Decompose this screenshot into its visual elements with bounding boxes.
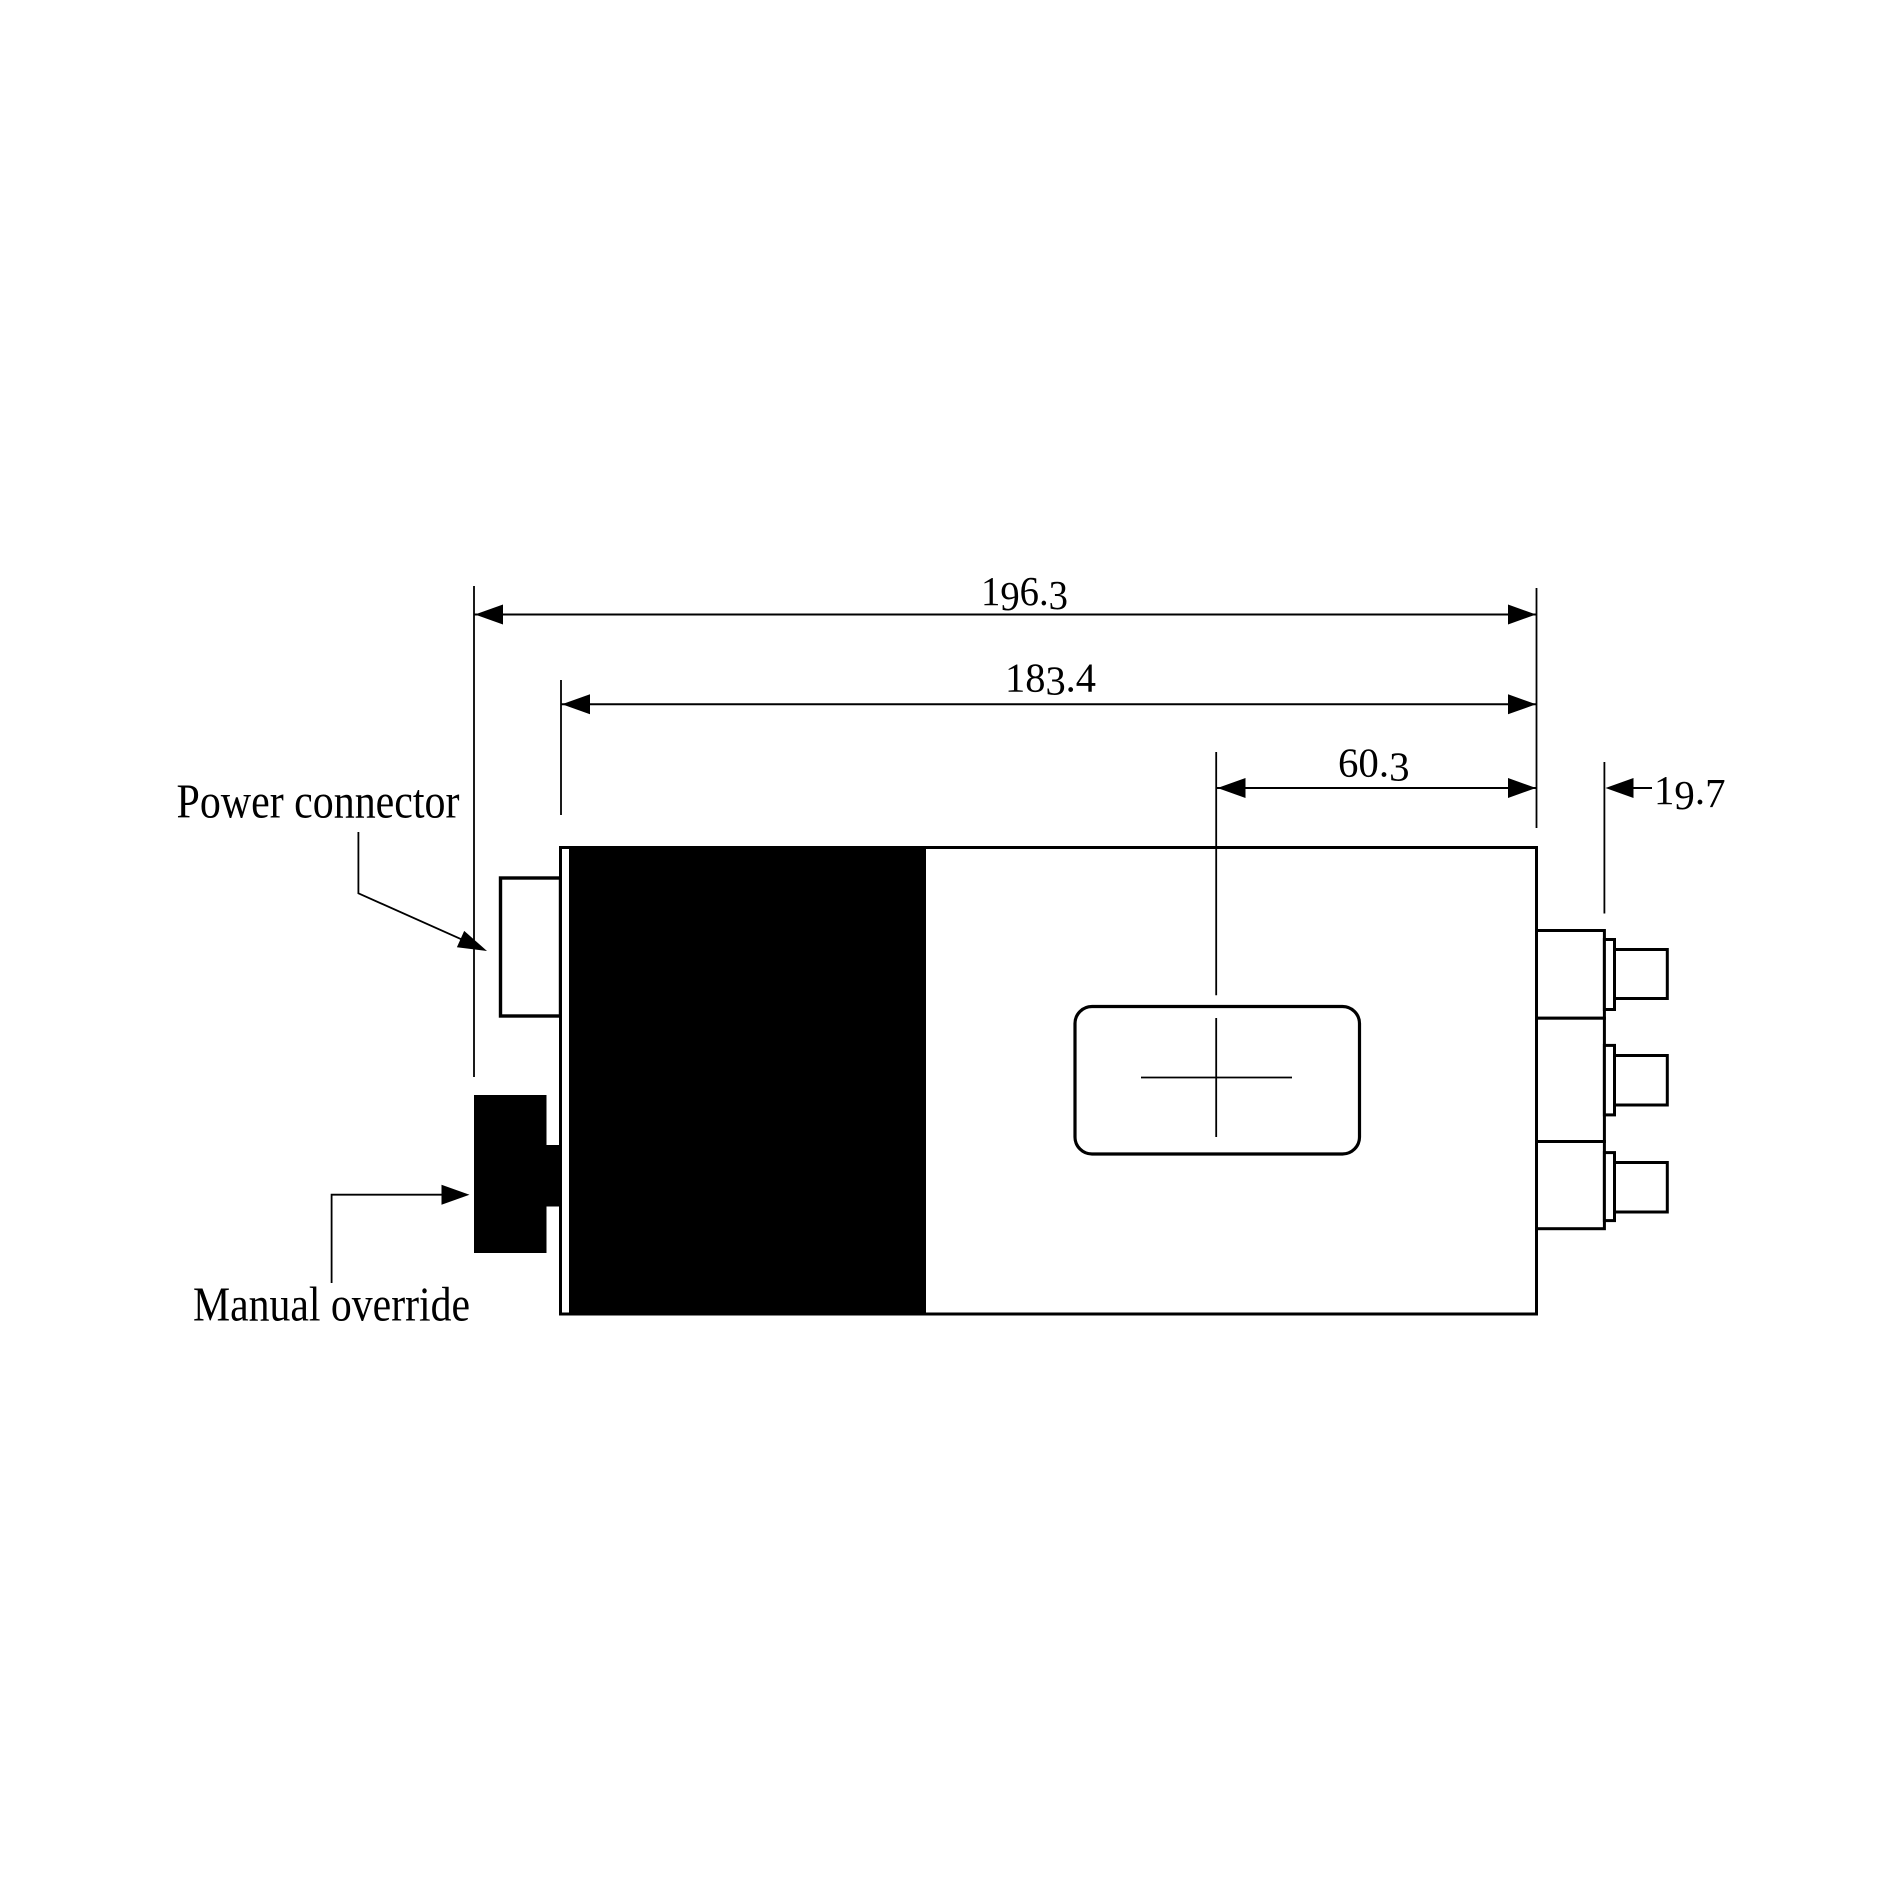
svg-text:Power connector: Power connector: [177, 773, 460, 828]
svg-text:19.7: 19.7: [1654, 767, 1726, 818]
svg-text:60.3: 60.3: [1338, 740, 1410, 790]
svg-text:196.3: 196.3: [981, 568, 1068, 619]
svg-text:183.4: 183.4: [1005, 654, 1096, 703]
svg-text:Manual override: Manual override: [193, 1276, 470, 1331]
